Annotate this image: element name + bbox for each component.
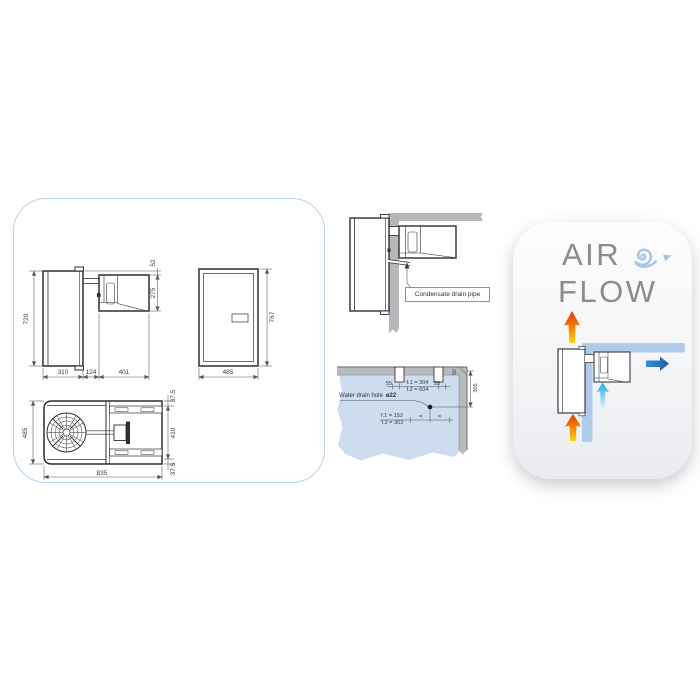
hot-air-arrow-top-icon [564, 311, 580, 343]
wall-right-edge [459, 375, 467, 455]
cold-room-wall [389, 221, 399, 334]
dim-label-835: 835 [87, 469, 117, 477]
front-view-drawing [199, 269, 258, 366]
dim-label-55-left: 55 [374, 380, 404, 388]
wall-cutout-drawing: Water drain hole ø22 55 f.1 = 304 f.2 = … [333, 358, 497, 483]
hot-air-arrow-bottom-icon [565, 414, 581, 441]
condensate-drain-pipe-label: Condensate drain pipe [405, 287, 490, 302]
dim-label-410: 410 [169, 418, 177, 448]
dim-label-37-5-top: 37.5 [169, 381, 177, 411]
dim-label-310: 310 [48, 369, 78, 377]
dim-label-305: 305 [472, 373, 480, 403]
unit-outline [558, 347, 630, 416]
water-drain-hole-text: Water drain hole [339, 393, 383, 399]
air-out-arrow-icon [646, 357, 669, 372]
dim-label-485-top: 485 [21, 418, 29, 448]
top-view-drawing [44, 401, 162, 464]
dim-label-401: 401 [109, 369, 139, 377]
dim-label-124: 124 [76, 369, 106, 377]
dim-label-f2-302: f.2 = 302 [378, 419, 408, 427]
equal-mark-right: = [425, 413, 455, 421]
cold-room-ceiling-panel [388, 213, 483, 221]
dimensions-panel: 720 52 275 310 124 401 767 485 485 37.5 … [13, 198, 325, 483]
water-drain-hole-marker [428, 405, 433, 410]
spec-sheet-page: 720 52 275 310 124 401 767 485 485 37.5 … [0, 0, 700, 700]
dim-label-52: 52 [149, 248, 157, 278]
dim-label-37-5-bottom: 37.5 [169, 454, 177, 484]
water-drain-hole-diameter: ø22 [386, 393, 396, 399]
dim-label-55-right: 55 [422, 380, 452, 388]
cold-air-arrow-icon [597, 383, 610, 407]
evaporator-section [350, 215, 391, 315]
side-view-drawing [43, 267, 149, 370]
airflow-diagram [513, 222, 692, 479]
wall-horizontal-band [584, 343, 685, 353]
condensing-unit-section [399, 226, 456, 258]
airflow-panel: AIR FLOW [513, 222, 692, 479]
dim-label-50: 50 [451, 357, 459, 387]
dim-label-720: 720 [22, 304, 30, 334]
dim-label-767: 767 [268, 302, 276, 332]
dim-label-485-front: 485 [213, 369, 243, 377]
dim-label-275: 275 [149, 278, 157, 308]
wall-mount-section-drawing: Condensate drain pipe [340, 203, 496, 353]
